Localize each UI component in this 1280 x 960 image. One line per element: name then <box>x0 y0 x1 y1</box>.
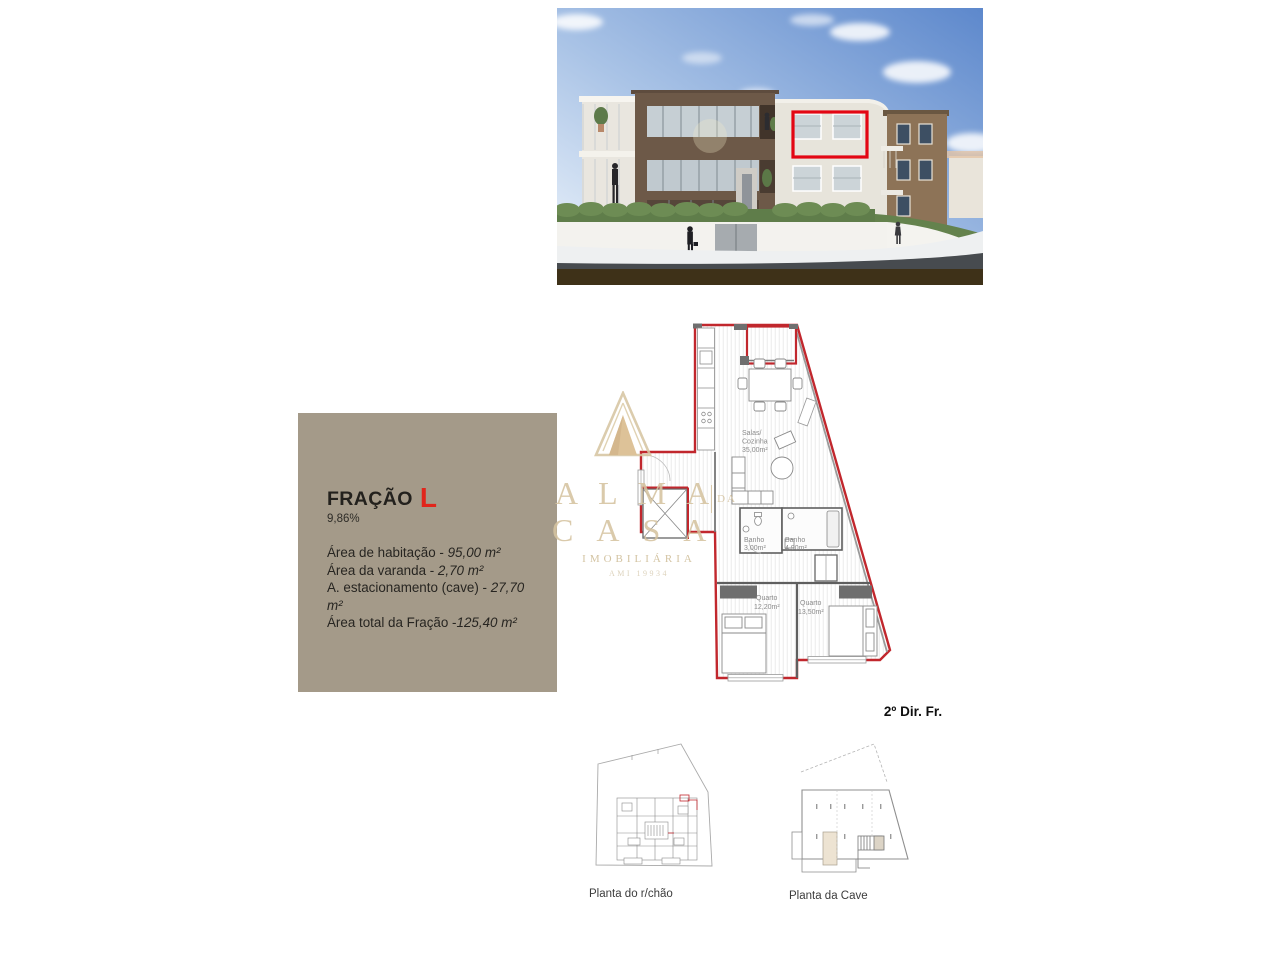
bed2-label: Quarto <box>800 600 822 607</box>
area-list: Área de habitação - 95,00 m² Área da var… <box>327 544 539 632</box>
wardrobe-1 <box>720 586 757 599</box>
brochure-page: FRAÇÃO L 9,86% Área de habitação - 95,00… <box>0 0 1280 960</box>
bath1-label: Banho <box>744 537 764 544</box>
area-line-habitacao: Área de habitação - 95,00 m² <box>327 544 539 562</box>
unit-label: 2º Dir. Fr. <box>858 704 968 719</box>
lens-flare <box>693 119 727 153</box>
parking-space-highlight <box>823 832 837 865</box>
building-footprint <box>617 798 697 864</box>
bath2-area: 4,90m² <box>785 545 807 552</box>
area-line-varanda: Área da varanda - 2,70 m² <box>327 562 539 580</box>
bed-2 <box>829 606 877 656</box>
fraction-letter: L <box>420 487 437 509</box>
living-label-2: Cozinha <box>742 439 768 446</box>
basement-outline <box>802 790 908 859</box>
bath1-area: 3,00m² <box>744 545 766 552</box>
bath2-label: Banho <box>785 537 805 544</box>
wardrobe-2 <box>839 586 872 599</box>
basement-plan-caption: Planta da Cave <box>789 890 868 902</box>
basement-dashed-boundary <box>801 744 887 782</box>
fraction-info-panel: FRAÇÃO L 9,86% Área de habitação - 95,00… <box>298 413 557 692</box>
area-line-estacionamento: A. estacionamento (cave) - 27,70 m² <box>327 579 539 614</box>
main-floor-plan: Salas/ Cozinha 35,00m² Banho 3,00m² Banh… <box>630 315 915 700</box>
living-label-1: Salas/ <box>742 430 762 437</box>
area-line-total: Área total da Fração -125,40 m² <box>327 614 539 632</box>
bed1-area: 12,20m² <box>754 604 780 611</box>
balcony-plant <box>594 107 608 125</box>
fraction-percentage: 9,86% <box>327 513 539 525</box>
coffee-table <box>771 457 793 479</box>
living-area: 35,00m² <box>742 447 768 454</box>
basement-mini-plan <box>786 738 928 888</box>
fraction-title: FRAÇÃO <box>327 490 413 510</box>
ground-plan-caption: Planta do r/chão <box>589 888 673 900</box>
fraction-title-row: FRAÇÃO L <box>327 487 539 509</box>
bed1-label: Quarto <box>756 595 778 602</box>
bed-1 <box>722 614 766 673</box>
building-render-art <box>557 8 983 285</box>
kitchen-counter <box>698 328 715 450</box>
base-band <box>557 269 983 285</box>
ground-floor-mini-plan <box>584 740 740 888</box>
bed2-area: 13,50m² <box>798 609 824 616</box>
building-render-image <box>557 8 983 285</box>
